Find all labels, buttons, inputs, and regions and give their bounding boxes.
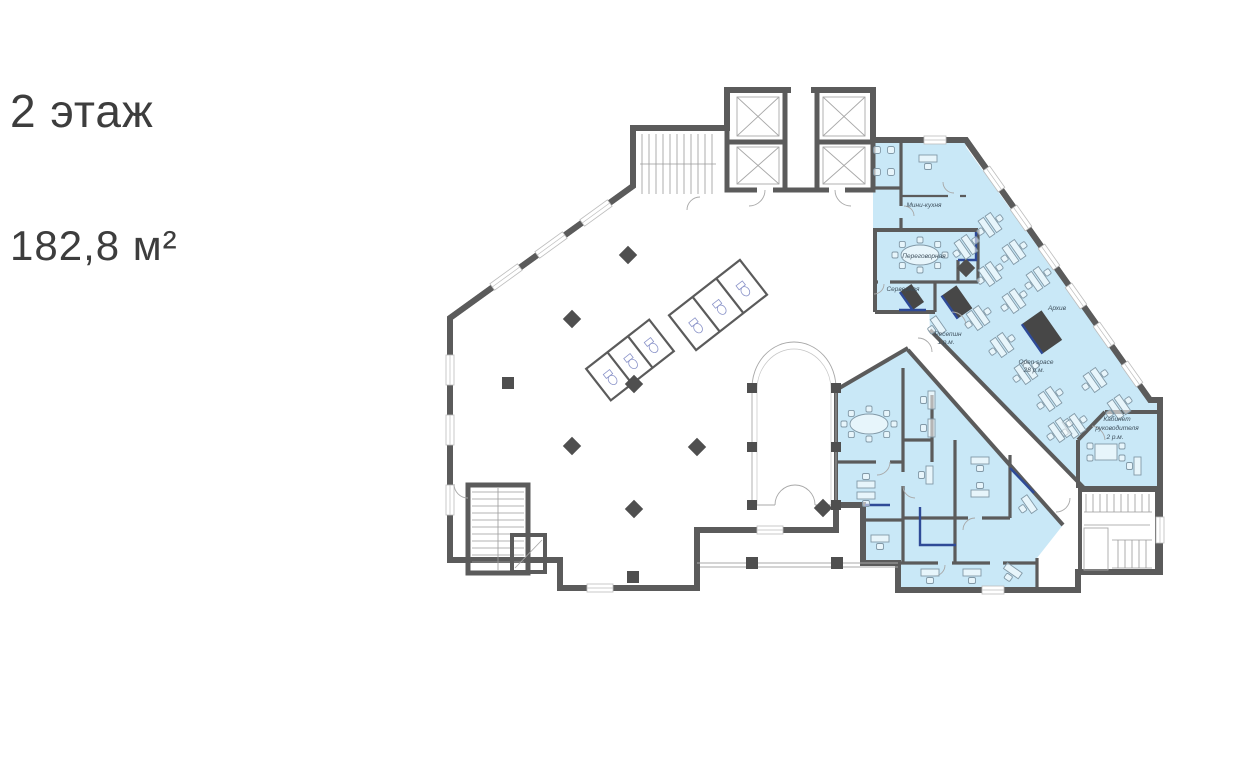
room-label-director-office: Кабинет [1103, 415, 1131, 423]
room-label-mini-kitchen: Мини-кухня [906, 202, 942, 209]
room-label-open-space-capacity: 28 р.м. [1023, 367, 1045, 374]
chair [888, 147, 895, 154]
window [1156, 517, 1164, 543]
window [924, 136, 946, 144]
floor-plan-svg: Мини-кухня Переговорная Серверная Ресепш… [0, 0, 1253, 758]
column-square [831, 557, 843, 569]
room-label-meeting-room: Переговорная [902, 253, 946, 260]
room-label-director-office-capacity: 2 р.м. [1105, 434, 1123, 441]
room-label-reception-capacity: 1 р.м. [937, 339, 954, 346]
chair [874, 147, 881, 154]
room-label-server-room: Серверная [886, 286, 920, 293]
column-square [502, 377, 514, 389]
room-label-archive: Архив [1047, 305, 1067, 312]
room-label-director-office-2: руководителя [1094, 424, 1139, 432]
window [446, 485, 454, 515]
column-square [746, 557, 758, 569]
chair [874, 169, 881, 176]
room-label-open-space: Open space [1018, 359, 1053, 366]
window [587, 584, 613, 592]
room-label-reception: Ресепшн [934, 331, 962, 338]
window [446, 415, 454, 445]
column-square [627, 571, 639, 583]
chair [888, 169, 895, 176]
window [757, 526, 783, 534]
window [446, 355, 454, 385]
window [982, 586, 1004, 594]
